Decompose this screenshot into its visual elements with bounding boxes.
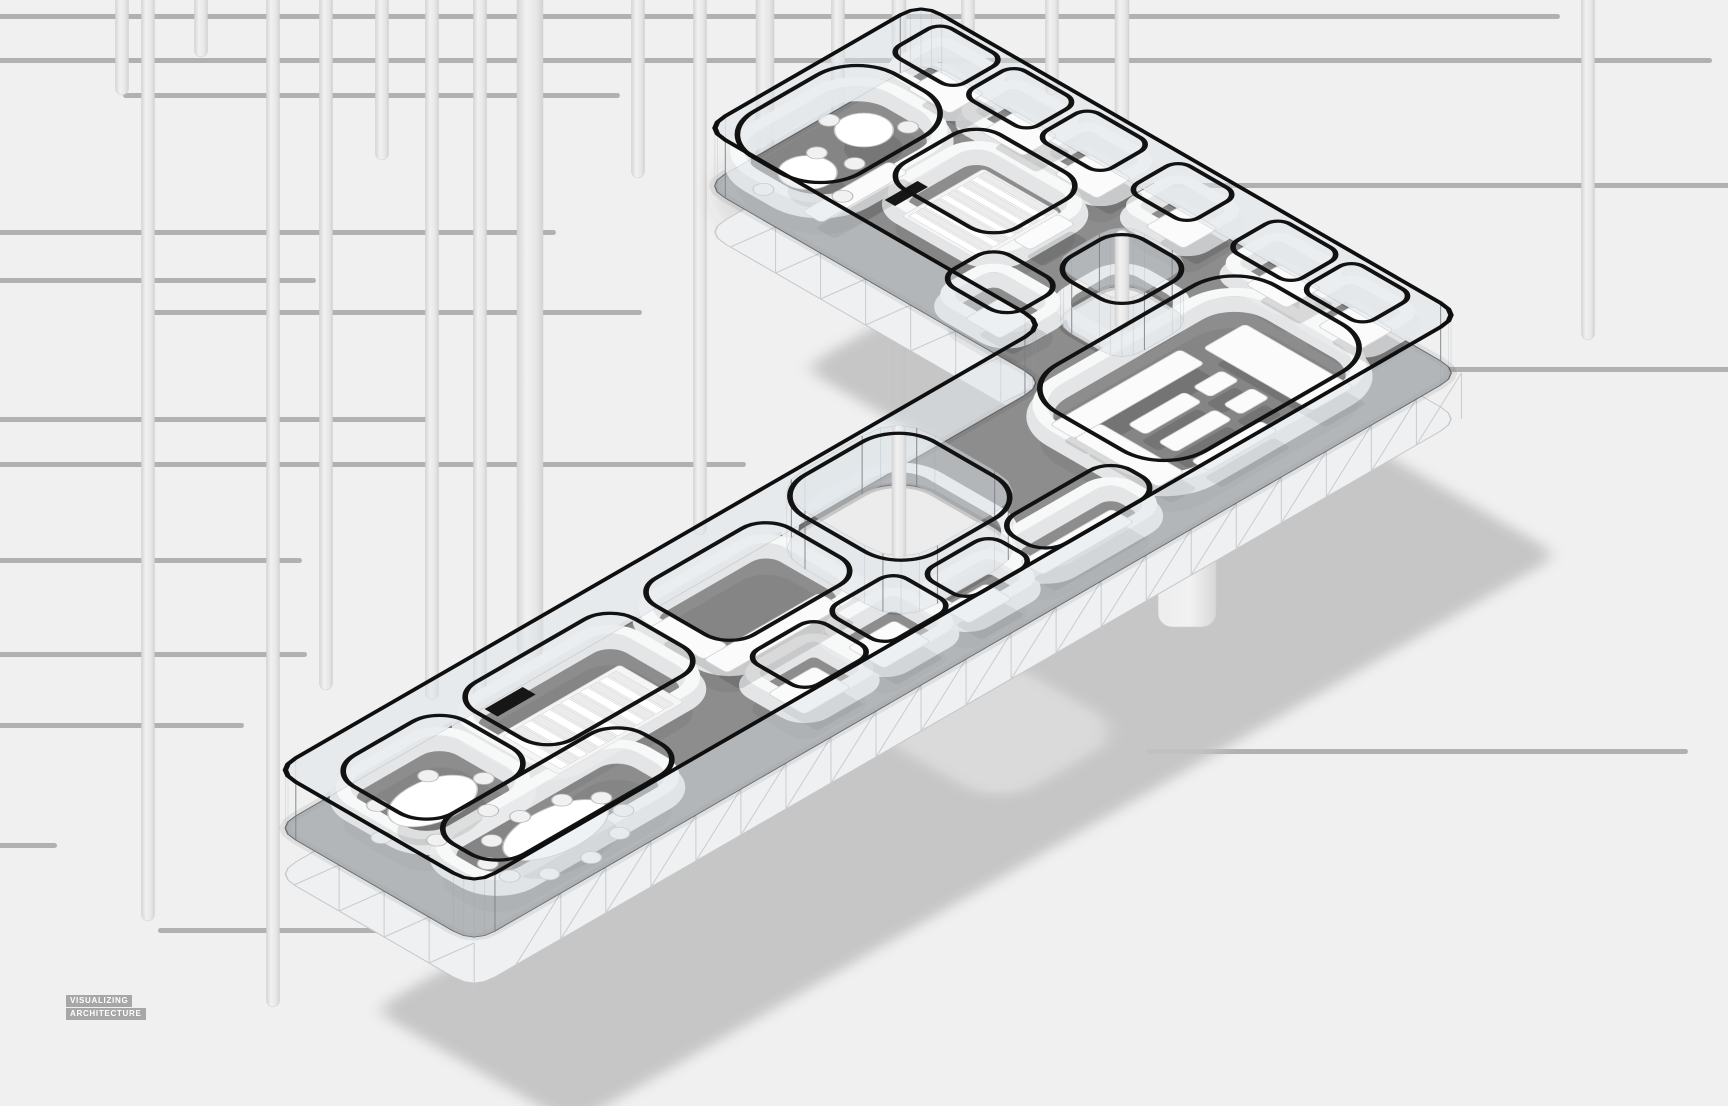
watermark-line2: ARCHITECTURE (66, 1008, 146, 1020)
axonometric-floor-plate-rendering (0, 0, 1728, 1106)
watermark-line1: VISUALIZING (66, 995, 132, 1007)
architectural-rendering-page: VISUALIZING ARCHITECTURE (0, 0, 1728, 1106)
watermark: VISUALIZING ARCHITECTURE (66, 995, 146, 1020)
